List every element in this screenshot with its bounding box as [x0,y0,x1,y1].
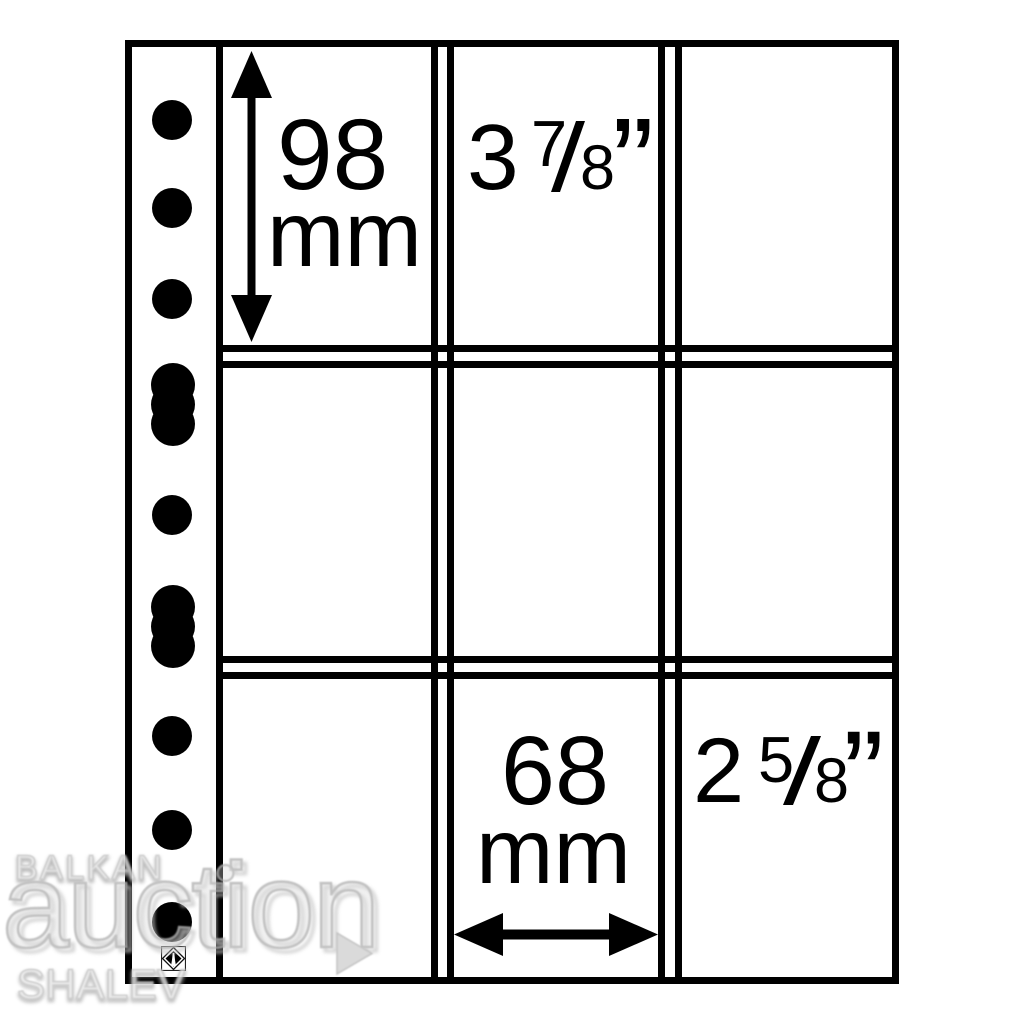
svg-text:auction: auction [2,837,378,973]
svg-text:SHALEV: SHALEV [17,961,186,1008]
